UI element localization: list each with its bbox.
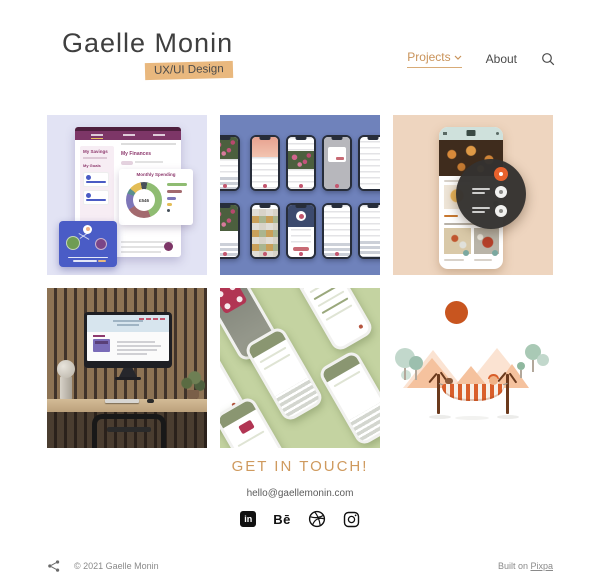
dribbble-link[interactable]: [308, 510, 326, 528]
mock-goals-title: My Goals: [83, 163, 111, 169]
mock-keyboard: [105, 399, 139, 403]
mock-website-screen: [87, 315, 169, 361]
nav-about-link[interactable]: About: [486, 52, 517, 66]
linkedin-link[interactable]: in: [240, 511, 256, 527]
mock-action-menu-overlay: [456, 159, 526, 229]
share-icon: [47, 559, 60, 573]
site-logo[interactable]: Gaelle Monin UX/UI Design: [62, 28, 233, 79]
project-thumbnail-finance-dashboard[interactable]: My Savings My Goals My Finances Monthly …: [47, 115, 207, 275]
mock-tree: [517, 362, 525, 370]
contact-heading: GET IN TOUCH!: [0, 458, 600, 475]
mock-plant: [179, 370, 205, 392]
instagram-icon: [343, 511, 360, 528]
site-header: Gaelle Monin UX/UI Design Projects About: [62, 28, 555, 79]
linkedin-icon: in: [240, 511, 256, 527]
mock-app-header: [439, 127, 503, 140]
nav-projects-link[interactable]: Projects: [407, 50, 461, 68]
mock-phone: [286, 135, 316, 191]
mock-dashboard-navbar: [75, 131, 181, 140]
mock-phone: [250, 135, 280, 191]
mock-imac: [84, 312, 172, 368]
mock-phone: [358, 135, 380, 191]
share-button[interactable]: [47, 559, 60, 573]
mock-fab-button: [164, 242, 173, 251]
mock-phone: [358, 203, 380, 259]
mock-hammock-post: [506, 374, 509, 414]
built-on-text: Built on: [498, 561, 531, 571]
instagram-link[interactable]: [343, 511, 360, 528]
mock-sun: [445, 301, 468, 324]
mock-chart-amount: £546: [139, 198, 149, 203]
site-title[interactable]: Gaelle Monin: [62, 28, 233, 59]
mock-menu-button: [495, 186, 507, 198]
mock-phone: [250, 203, 280, 259]
mock-spending-chart-card: Monthly Spending £546: [119, 169, 193, 225]
site-tagline-badge: UX/UI Design: [145, 61, 233, 80]
mock-mouse: [147, 399, 154, 403]
main-nav: Projects About: [407, 50, 555, 68]
mock-phone: [293, 288, 375, 353]
search-button[interactable]: [541, 52, 555, 66]
search-icon: [541, 52, 555, 66]
mock-lamp: [60, 376, 72, 400]
behance-icon: Bē: [273, 512, 291, 527]
dribbble-icon: [308, 510, 326, 528]
copyright-text: © 2021 Gaelle Monin: [74, 561, 159, 571]
mock-chart-title: Monthly Spending: [119, 172, 193, 177]
mock-savings-title: My Savings: [83, 149, 111, 155]
mock-chair: [92, 414, 166, 448]
mock-add-button: [494, 167, 508, 181]
pixpa-link[interactable]: Pixpa: [530, 561, 553, 571]
behance-link[interactable]: Bē: [273, 512, 291, 527]
mock-phone: [220, 203, 240, 259]
contact-email-link[interactable]: hello@gaellemonin.com: [0, 488, 600, 499]
project-thumbnail-recipe-app[interactable]: [393, 115, 553, 275]
portfolio-page: Gaelle Monin UX/UI Design Projects About: [0, 0, 600, 586]
nav-projects-label: Projects: [407, 50, 450, 64]
social-links: in Bē: [0, 510, 600, 528]
mock-hammock-post: [437, 374, 440, 414]
mock-hammock: [442, 384, 504, 401]
project-thumbnail-mobile-app-blue[interactable]: [220, 115, 380, 275]
mock-phone: [220, 135, 240, 191]
mock-pet: [445, 378, 453, 384]
contact-section: GET IN TOUCH! hello@gaellemonin.com: [0, 458, 600, 499]
mock-donut-chart: £546: [126, 182, 162, 218]
mock-tree: [537, 354, 549, 366]
chevron-down-icon: [454, 55, 462, 60]
mock-phone: [286, 203, 316, 259]
mock-phone: [322, 203, 352, 259]
mock-finances-title: My Finances: [121, 151, 151, 157]
project-thumbnail-desk-website[interactable]: [47, 288, 207, 448]
site-footer: © 2021 Gaelle Monin Built on Pixpa: [47, 558, 553, 574]
mock-tree: [409, 356, 423, 370]
project-grid: My Savings My Goals My Finances Monthly …: [47, 115, 553, 448]
project-thumbnail-mobile-app-green[interactable]: [220, 288, 380, 448]
mock-phone: [322, 135, 352, 191]
mock-menu-button: [495, 205, 507, 217]
mock-tree: [401, 370, 411, 380]
mock-phone: [317, 349, 380, 447]
mock-referral-card: [59, 221, 117, 267]
project-thumbnail-illustration[interactable]: [393, 288, 553, 448]
